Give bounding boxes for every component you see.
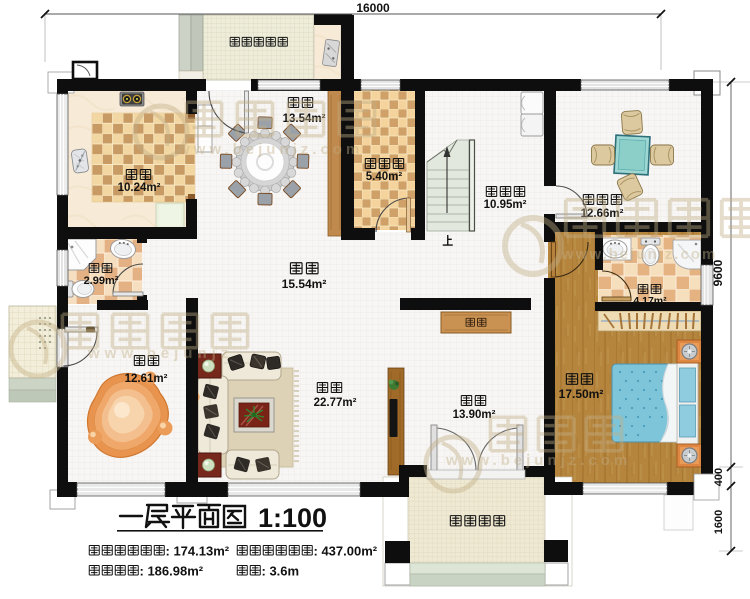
svg-text:www.bejunjz.com: www.bejunjz.com (445, 452, 631, 469)
svg-text:: 3.6m: : 3.6m (262, 564, 300, 579)
svg-text:www.bejunjz: www.bejunjz (87, 345, 233, 362)
svg-text:15.54m²: 15.54m² (282, 277, 327, 291)
svg-text:: 437.00m²: : 437.00m² (314, 544, 378, 559)
svg-text:www.bejunjz.com: www.bejunjz.com (177, 141, 363, 158)
svg-text:10.95m²: 10.95m² (484, 199, 527, 211)
svg-text:400: 400 (713, 468, 725, 486)
svg-text:9600: 9600 (711, 259, 725, 286)
svg-text:22.77m²: 22.77m² (314, 397, 357, 409)
svg-text:1600: 1600 (713, 510, 725, 534)
svg-text:10.24m²: 10.24m² (118, 182, 161, 194)
svg-text:5.40m²: 5.40m² (366, 171, 403, 183)
svg-text:12.61m²: 12.61m² (125, 373, 168, 385)
svg-text:1:100: 1:100 (258, 503, 327, 533)
svg-text:4.17m²: 4.17m² (633, 295, 667, 307)
svg-text:www.bejunjz.com: www.bejunjz.com (561, 246, 717, 263)
svg-text:16000: 16000 (356, 1, 390, 15)
svg-text:17.50m²: 17.50m² (559, 387, 604, 401)
svg-text:2.99m²: 2.99m² (84, 275, 119, 287)
svg-text:: 174.13m²: : 174.13m² (166, 544, 230, 559)
svg-text:: 186.98m²: : 186.98m² (140, 564, 204, 579)
